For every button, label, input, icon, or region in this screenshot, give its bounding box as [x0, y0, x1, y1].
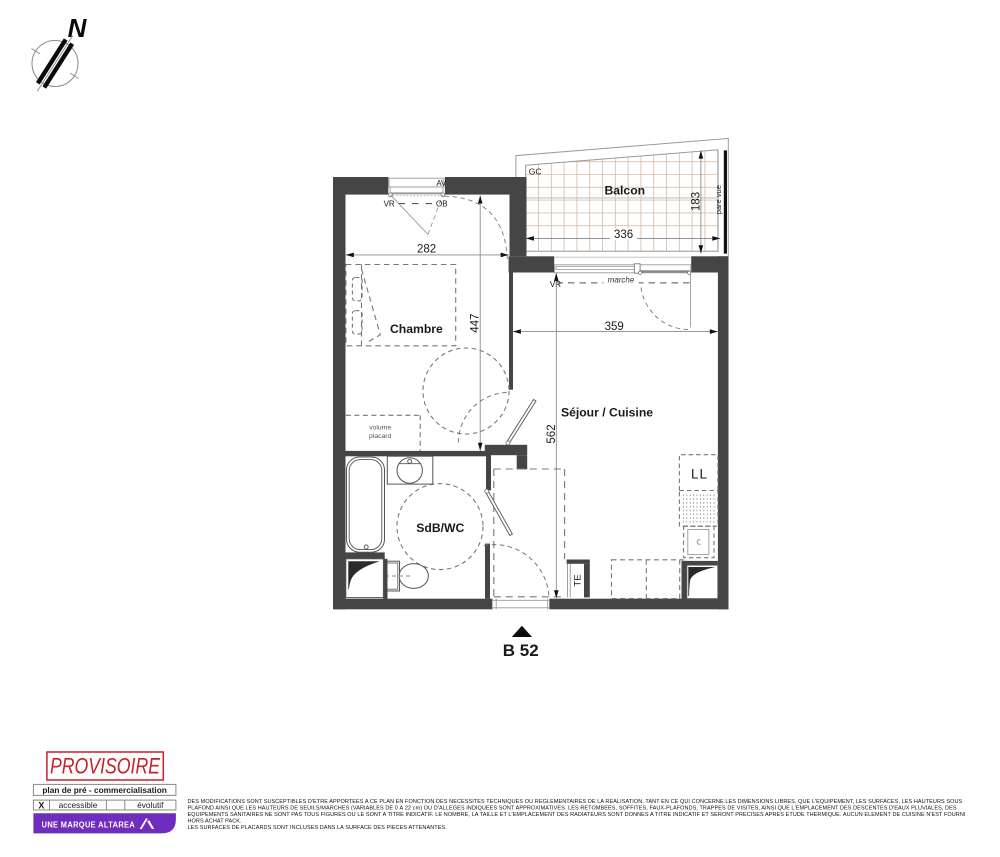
svg-text:plan de pré - commercialisatio: plan de pré - commercialisation	[42, 785, 167, 795]
svg-text:volume: volume	[369, 425, 391, 432]
svg-text:DES MODIFICATIONS SONT SUSCEPT: DES MODIFICATIONS SONT SUSCEPTIBLES D'ET…	[188, 799, 963, 805]
svg-text:UNE MARQUE ALTAREA: UNE MARQUE ALTAREA	[42, 820, 136, 829]
svg-text:282: 282	[417, 244, 436, 256]
svg-text:TE: TE	[573, 574, 584, 586]
svg-text:X: X	[38, 800, 44, 810]
svg-text:N: N	[68, 13, 88, 43]
svg-text:VR: VR	[384, 199, 395, 208]
svg-text:SdB/WC: SdB/WC	[416, 521, 464, 535]
svg-text:PROVISOIRE: PROVISOIRE	[50, 754, 160, 779]
svg-text:VR: VR	[550, 280, 561, 289]
svg-text:pare vue: pare vue	[714, 185, 723, 214]
svg-text:LES SURFACES DE PLACARDS SONT: LES SURFACES DE PLACARDS SONT INCLUSES D…	[188, 825, 448, 831]
svg-text:HORS ACHAT PACK.: HORS ACHAT PACK.	[188, 819, 243, 825]
svg-text:OB: OB	[436, 200, 448, 209]
svg-text:placard: placard	[369, 433, 392, 440]
svg-text:447: 447	[470, 314, 482, 333]
svg-text:évolutif: évolutif	[137, 800, 164, 810]
svg-text:marche: marche	[608, 276, 635, 285]
svg-text:336: 336	[614, 229, 633, 241]
svg-text:562: 562	[546, 424, 558, 443]
svg-text:PLAFOND AINSI QUE LES HAUTEURS: PLAFOND AINSI QUE LES HAUTEURS DE SEUILS…	[188, 805, 957, 812]
svg-text:LL: LL	[691, 467, 708, 482]
svg-text:Séjour / Cuisine: Séjour / Cuisine	[561, 406, 653, 420]
svg-text:EQUIPEMENTS SANITAIRES NE SONT: EQUIPEMENTS SANITAIRES NE SONT PAS TOUS …	[188, 812, 966, 818]
svg-text:Chambre: Chambre	[390, 322, 443, 336]
svg-text:GC: GC	[529, 167, 542, 177]
svg-text:AV: AV	[436, 179, 447, 188]
svg-text:accessible: accessible	[59, 800, 98, 810]
svg-text:359: 359	[605, 321, 624, 333]
svg-text:183: 183	[690, 192, 702, 211]
svg-text:B 52: B 52	[503, 641, 539, 660]
svg-text:Balcon: Balcon	[604, 184, 645, 198]
